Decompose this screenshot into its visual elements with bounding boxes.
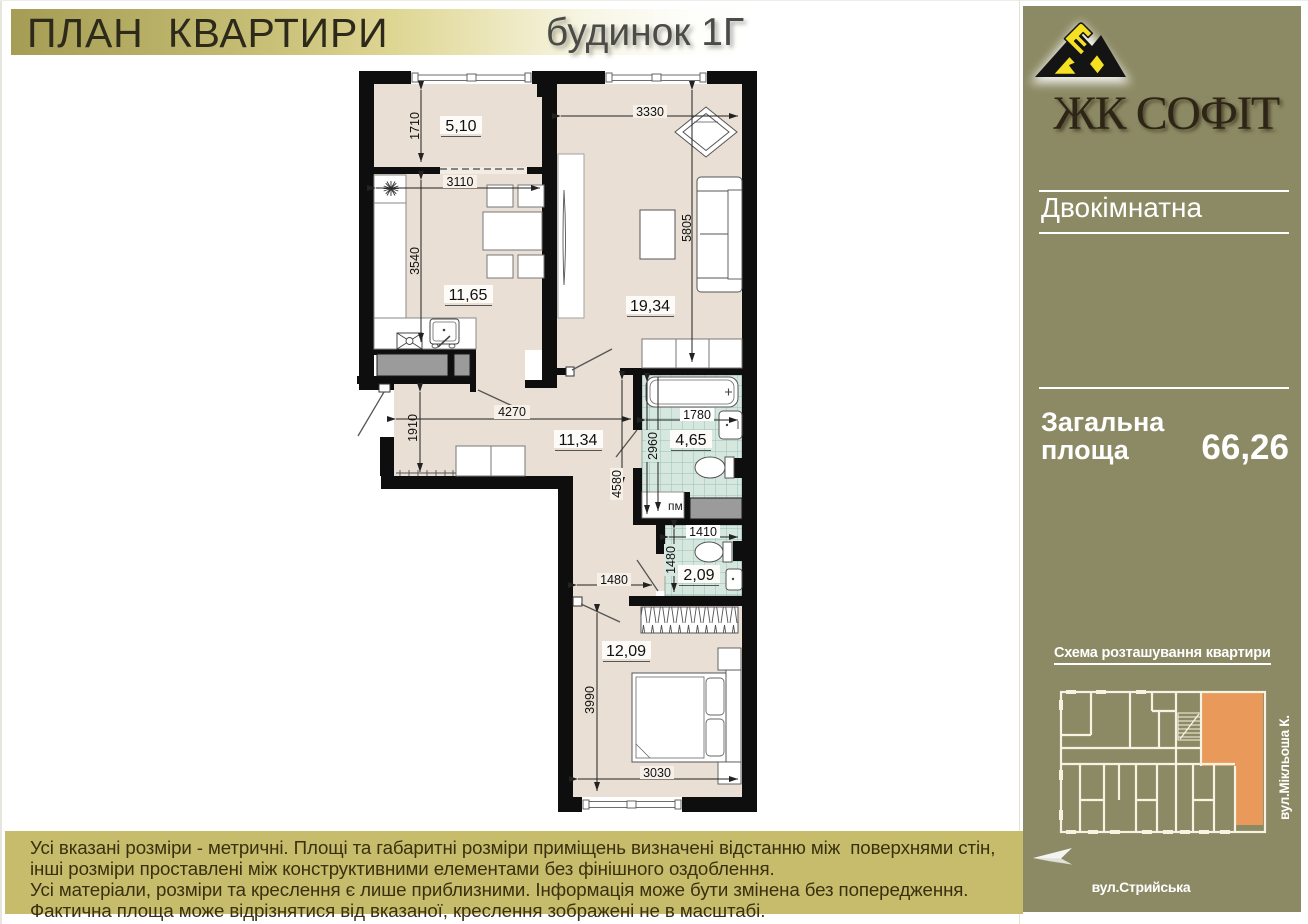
svg-text:5,10: 5,10 — [445, 118, 476, 135]
svg-text:пм: пм — [668, 499, 683, 513]
svg-text:12,09: 12,09 — [606, 643, 646, 660]
svg-text:11,34: 11,34 — [559, 432, 598, 449]
svg-text:2,09: 2,09 — [683, 567, 714, 584]
svg-text:3540: 3540 — [408, 247, 422, 275]
svg-text:1410: 1410 — [689, 525, 717, 539]
svg-text:5805: 5805 — [680, 214, 694, 242]
svg-text:4,65: 4,65 — [675, 432, 706, 449]
svg-text:1480: 1480 — [600, 573, 628, 587]
svg-text:11,65: 11,65 — [449, 287, 488, 304]
svg-text:2960: 2960 — [646, 432, 660, 460]
svg-text:1910: 1910 — [406, 414, 420, 442]
svg-text:1710: 1710 — [408, 112, 422, 140]
svg-text:19,34: 19,34 — [630, 298, 670, 315]
svg-text:4580: 4580 — [610, 470, 624, 498]
svg-text:3110: 3110 — [447, 175, 474, 189]
svg-text:3030: 3030 — [643, 766, 671, 780]
svg-text:3330: 3330 — [636, 105, 664, 119]
svg-text:4270: 4270 — [498, 405, 526, 419]
svg-text:1480: 1480 — [664, 546, 678, 574]
svg-text:3990: 3990 — [583, 686, 597, 714]
svg-text:1780: 1780 — [683, 408, 711, 422]
